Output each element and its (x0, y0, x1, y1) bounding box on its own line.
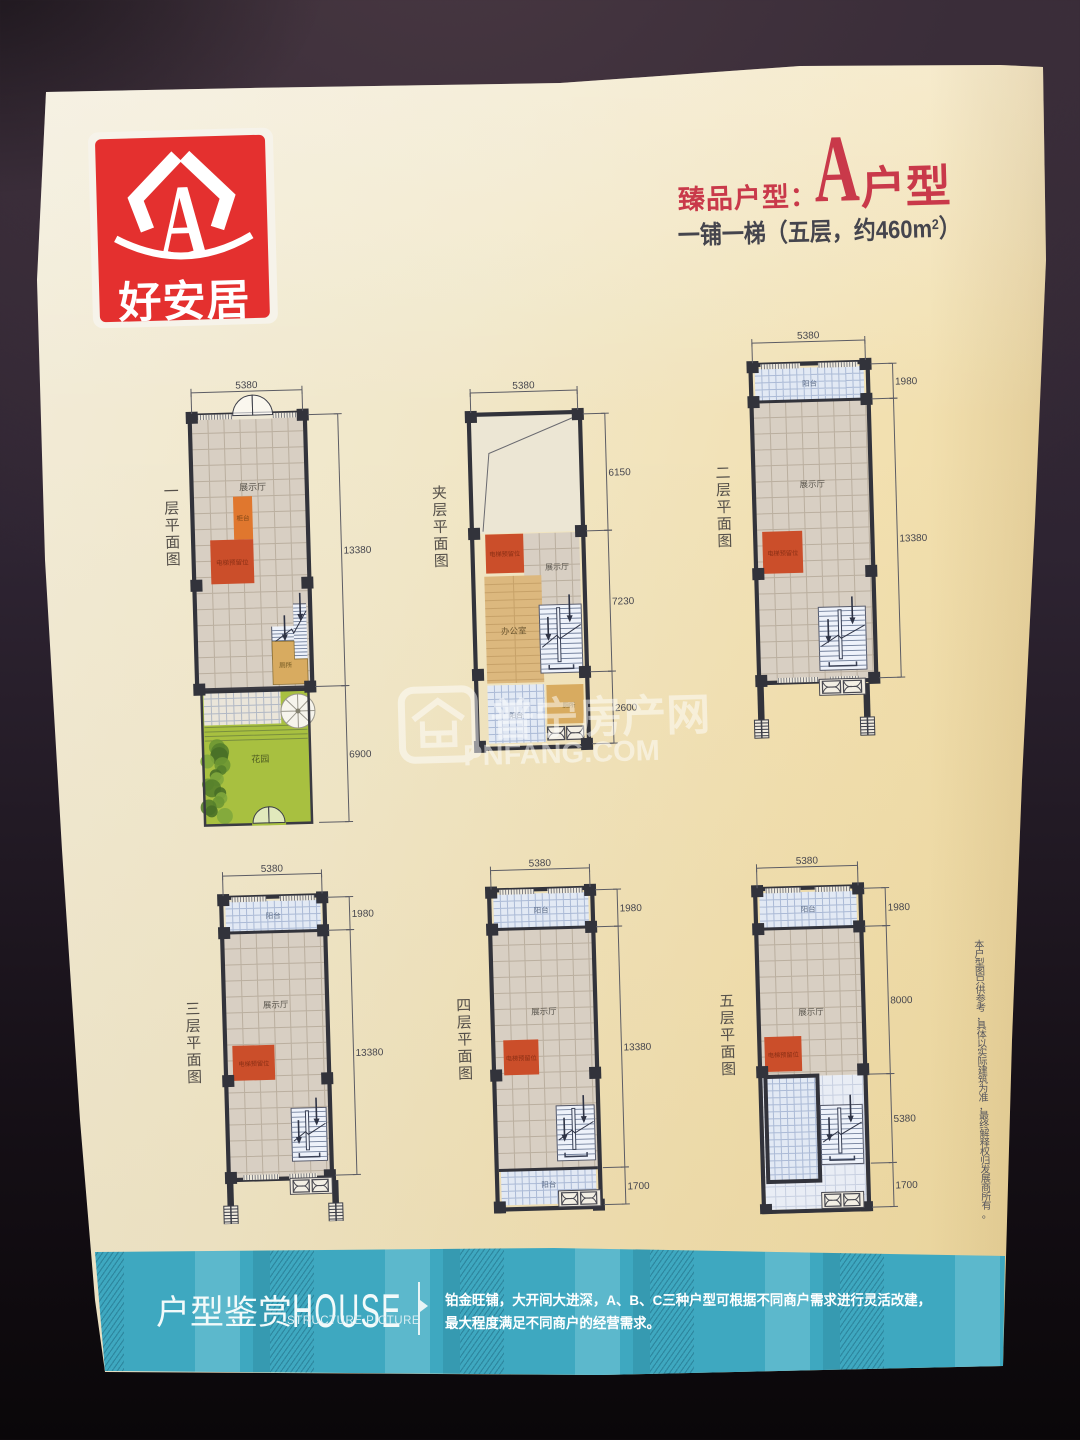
svg-text:阳台: 阳台 (533, 905, 548, 915)
svg-text:阳台: 阳台 (802, 378, 817, 388)
svg-text:5380: 5380 (512, 380, 535, 392)
svg-text:展示厅: 展示厅 (239, 482, 266, 493)
svg-text:7230: 7230 (612, 596, 635, 608)
svg-text:电梯预留位: 电梯预留位 (489, 550, 520, 559)
svg-text:5380: 5380 (797, 330, 820, 342)
svg-text:办公室: 办公室 (501, 626, 527, 637)
svg-text:13380: 13380 (355, 1047, 384, 1059)
svg-text:5380: 5380 (893, 1113, 916, 1125)
svg-text:展示厅: 展示厅 (531, 1006, 557, 1017)
svg-text:1980: 1980 (352, 908, 375, 920)
svg-text:13380: 13380 (343, 545, 372, 557)
svg-text:展示厅: 展示厅 (798, 1006, 824, 1017)
svg-text:展示厅: 展示厅 (799, 479, 825, 490)
svg-text:5380: 5380 (261, 863, 284, 875)
svg-text:电梯预留位: 电梯预留位 (767, 549, 798, 558)
svg-text:1700: 1700 (627, 1181, 650, 1193)
svg-text:展示厅: 展示厅 (263, 999, 289, 1010)
svg-text:5380: 5380 (796, 855, 819, 867)
svg-text:电梯预留位: 电梯预留位 (238, 1059, 269, 1068)
svg-text:1700: 1700 (895, 1180, 918, 1192)
svg-text:1980: 1980 (619, 903, 642, 915)
svg-text:花园: 花园 (251, 753, 269, 764)
svg-text:1980: 1980 (895, 376, 918, 388)
svg-text:6900: 6900 (349, 749, 372, 761)
svg-text:柜台: 柜台 (236, 513, 249, 522)
svg-text:8000: 8000 (890, 995, 913, 1007)
svg-text:1980: 1980 (888, 902, 911, 914)
svg-text:电梯预留位: 电梯预留位 (506, 1054, 537, 1063)
svg-text:5380: 5380 (529, 858, 552, 870)
svg-text:阳台: 阳台 (801, 904, 816, 914)
svg-text:13380: 13380 (623, 1042, 652, 1054)
svg-text:A: A (157, 163, 210, 280)
svg-text:阳台: 阳台 (541, 1179, 556, 1189)
svg-text:电梯预留位: 电梯预留位 (768, 1051, 799, 1060)
svg-text:6150: 6150 (608, 467, 631, 479)
svg-text:厕所: 厕所 (279, 660, 293, 669)
svg-text:5380: 5380 (235, 380, 258, 392)
svg-text:阳台: 阳台 (266, 910, 281, 920)
svg-text:展示厅: 展示厅 (545, 562, 569, 572)
svg-text:13380: 13380 (899, 533, 928, 545)
